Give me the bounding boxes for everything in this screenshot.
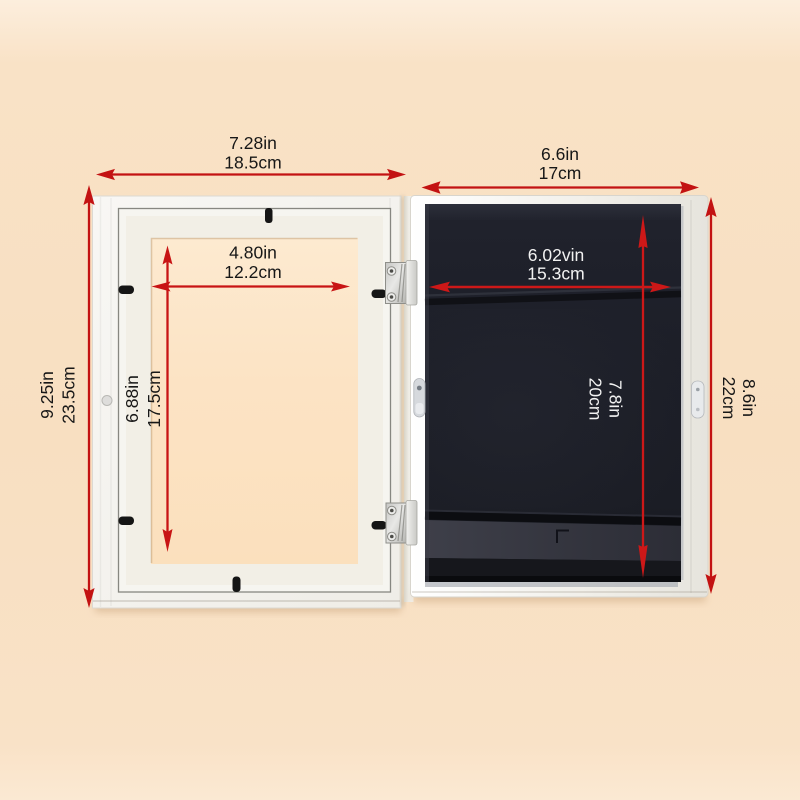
svg-text:22cm: 22cm — [719, 377, 739, 420]
svg-text:6.02vin: 6.02vin — [528, 245, 584, 265]
svg-text:9.25in: 9.25in — [37, 371, 57, 419]
svg-text:17.5cm: 17.5cm — [144, 370, 164, 427]
svg-text:7.8in: 7.8in — [606, 380, 626, 418]
svg-text:8.6in: 8.6in — [739, 379, 759, 417]
svg-text:7.28in: 7.28in — [229, 133, 277, 153]
svg-text:6.88in: 6.88in — [122, 375, 142, 423]
svg-text:20cm: 20cm — [586, 378, 606, 421]
svg-text:12.2cm: 12.2cm — [224, 262, 281, 282]
svg-text:17cm: 17cm — [539, 163, 582, 183]
svg-text:4.80in: 4.80in — [229, 243, 277, 263]
svg-text:6.6in: 6.6in — [541, 144, 579, 164]
svg-text:23.5cm: 23.5cm — [59, 366, 79, 423]
svg-text:15.3cm: 15.3cm — [527, 264, 584, 284]
svg-text:18.5cm: 18.5cm — [224, 153, 281, 173]
